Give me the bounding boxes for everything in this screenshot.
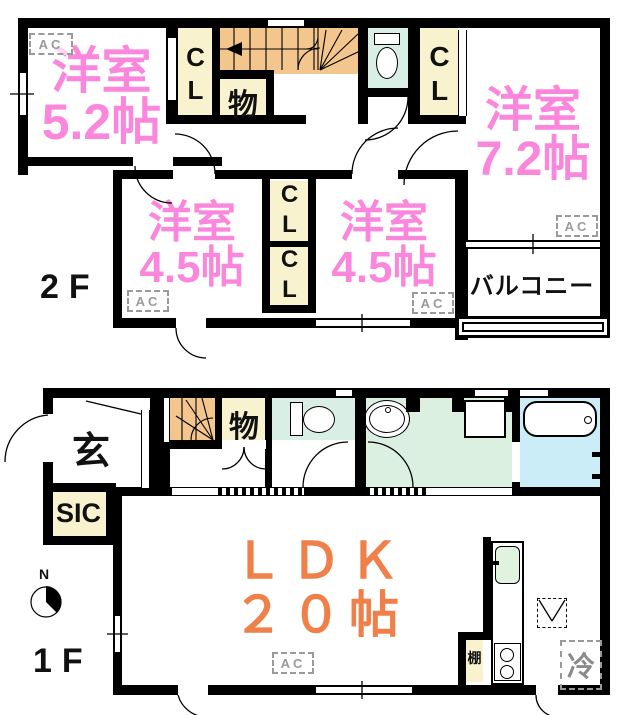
washing-machine [464, 400, 506, 438]
room-name: 洋室 [148, 201, 236, 246]
wall [165, 440, 222, 449]
room-size: 4.5帖 [331, 246, 436, 291]
door-opening [536, 685, 558, 695]
north-label: N [39, 566, 49, 582]
wall [408, 18, 420, 124]
stove-burner-2 [500, 665, 514, 679]
ac-marker: AC [127, 290, 169, 312]
wall [18, 157, 222, 166]
sliding-door-hatch [218, 487, 304, 496]
toilet-bowl-2f [376, 47, 398, 79]
ac-marker: AC [272, 652, 314, 674]
balcony-railing-inner [462, 322, 604, 332]
wall [512, 487, 610, 496]
door-opening [352, 170, 398, 179]
entrance-step-line [86, 401, 141, 414]
wall [43, 483, 115, 492]
closet-label: CL [270, 181, 308, 241]
storage-2f-label: 物 [222, 80, 264, 124]
window [18, 73, 28, 115]
wall [262, 305, 316, 313]
ac-marker: AC [29, 33, 73, 55]
toilet-tank-2f [374, 33, 400, 45]
wall [355, 398, 366, 488]
closet-label: CL [270, 247, 308, 305]
room-size: 7.2帖 [476, 136, 591, 185]
floorplan: 冷 洋室 5.2帖 洋室 7.2帖 洋室 4.5帖 洋室 4.5帖 バルコニー … [0, 0, 628, 715]
sliding-door-hatch [366, 487, 430, 496]
storage-1f-label: 物 [224, 402, 264, 446]
ac-marker: AC [556, 215, 598, 237]
sliding-window-balcony [466, 240, 600, 249]
bath-door-opening [512, 442, 520, 482]
wall [113, 170, 465, 179]
stove-burner-1 [500, 648, 514, 662]
wall [113, 318, 470, 328]
floor-hatch-marker [537, 598, 567, 628]
entrance-label: 玄 [72, 420, 110, 475]
wall [452, 398, 464, 412]
wall [113, 487, 122, 695]
floor2-label: 2F [40, 268, 100, 307]
hall-opening [141, 410, 150, 488]
closet-label: CL [420, 32, 458, 118]
wall [358, 18, 368, 124]
ldk-label: ＬＤＫ ２０帖 [205, 532, 435, 644]
window [520, 388, 548, 398]
door-opening [133, 157, 173, 166]
wall [406, 398, 420, 412]
room-name: 洋室 [485, 87, 581, 136]
staircase-2f [218, 28, 363, 74]
wall [43, 536, 116, 545]
window [475, 388, 508, 398]
compass-icon [31, 586, 61, 617]
room-name: 洋室 [340, 201, 428, 246]
refrigerator-label: 冷 [567, 645, 595, 685]
bathtub-drain [584, 416, 592, 424]
wall [113, 170, 122, 328]
floor1-label: 1F [33, 642, 93, 681]
window [268, 18, 304, 28]
shelf-label: 棚 [466, 648, 483, 668]
closet-label: CL [178, 32, 212, 118]
window [113, 616, 122, 652]
wall [212, 70, 274, 79]
sic-label: SIC [51, 498, 106, 529]
vanity-faucet-dot [385, 407, 391, 413]
staircase-1f [170, 398, 215, 442]
ac-marker: AC [412, 292, 454, 314]
wall [18, 18, 610, 28]
room-name: ＬＤＫ [233, 534, 407, 588]
sliding-door [430, 487, 512, 496]
wall [265, 398, 272, 488]
balcony-label: バルコニー [462, 266, 602, 301]
sliding-door [172, 487, 218, 496]
door-opening [178, 685, 208, 695]
door-opening [173, 170, 215, 179]
wall [458, 632, 466, 685]
room-size: ２０帖 [233, 588, 407, 642]
window [316, 318, 410, 328]
toilet-tank-1f [290, 402, 303, 436]
window [336, 388, 352, 398]
room-45-right-label: 洋室 4.5帖 [313, 182, 455, 310]
room-size: 5.2帖 [42, 97, 162, 148]
wall [304, 487, 366, 496]
toilet-bowl-1f [303, 406, 335, 433]
kitchen-sink [495, 546, 520, 584]
room-size: 4.5帖 [139, 246, 244, 291]
door-opening [176, 318, 206, 328]
room-72-label: 洋室 7.2帖 [466, 66, 600, 206]
wall [483, 537, 491, 640]
window [316, 685, 412, 695]
entrance-door-opening [43, 414, 53, 462]
refrigerator-space: 冷 [560, 640, 602, 690]
stairs-edge [163, 398, 170, 442]
